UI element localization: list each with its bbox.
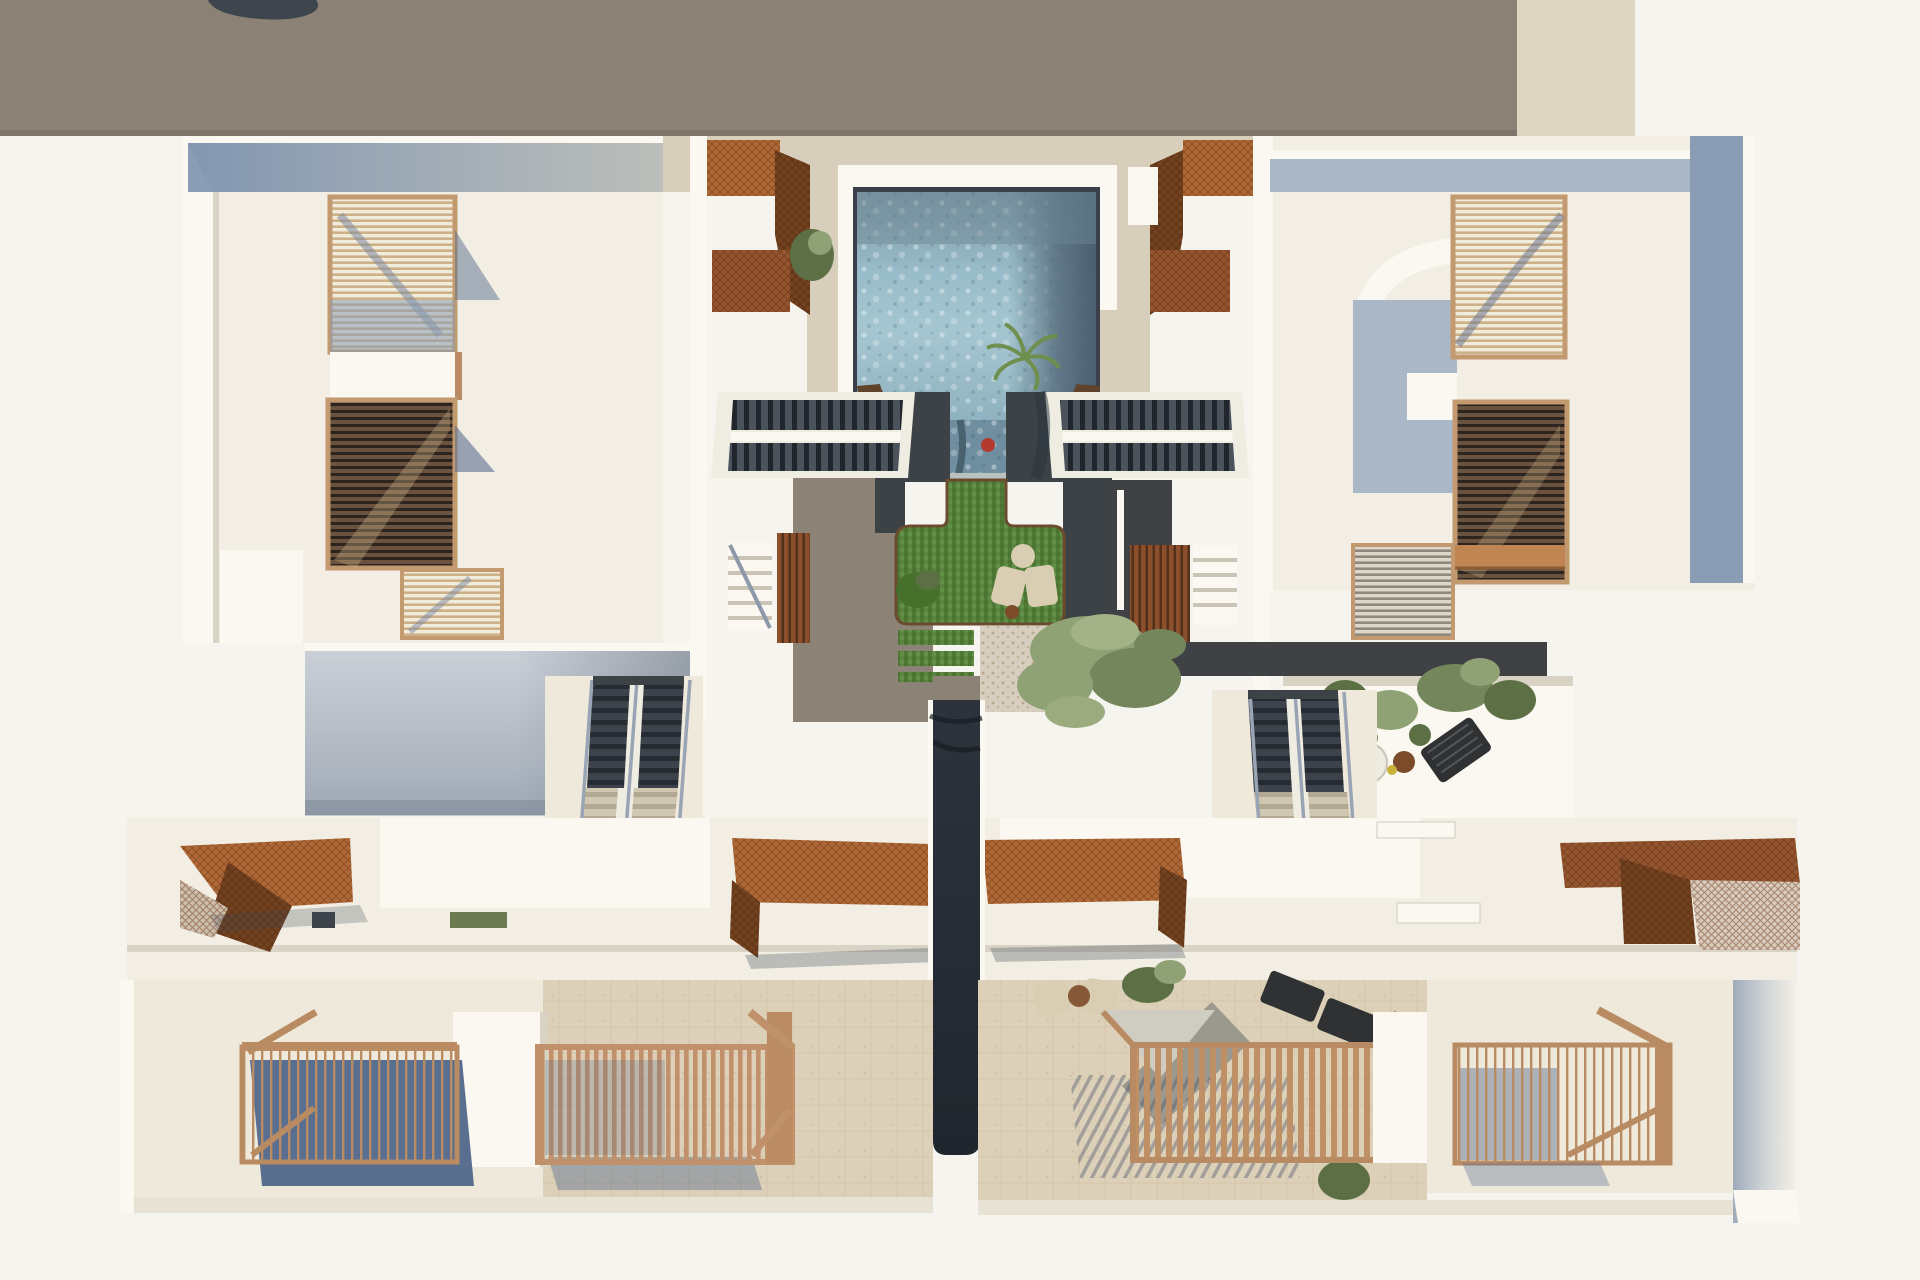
east-wall (1733, 980, 1800, 1223)
coffee-table (1068, 985, 1090, 1007)
planter-slot (450, 912, 507, 928)
central-corridor (928, 676, 985, 1155)
beige-wall-strip (1517, 0, 1635, 140)
west-wall (120, 980, 134, 1213)
lawn-step (898, 630, 974, 645)
balcony-screen-light-2 (402, 570, 502, 638)
roof-panel (1397, 903, 1480, 923)
north-parapet (1270, 159, 1743, 192)
balcony-slab (330, 352, 462, 400)
upper-left-building (183, 136, 663, 643)
upper-right-building (1257, 136, 1755, 638)
side-stairs-west (728, 533, 810, 643)
east-parapet (1690, 136, 1743, 583)
courtyard-stairs-east (1045, 392, 1249, 478)
corten-screen (777, 533, 810, 643)
pool-float (981, 438, 995, 452)
sw-volume (220, 550, 303, 643)
divider-box (1373, 1012, 1427, 1163)
balcony-screen-light-1 (1453, 197, 1565, 357)
side-table (1011, 544, 1035, 568)
lounge-chair (1023, 564, 1058, 608)
neighbor-roof (0, 0, 1517, 136)
render-canvas (0, 0, 1920, 1280)
architectural-render (0, 0, 1920, 1280)
courtyard-stairs-west (711, 392, 915, 478)
lawn-step (898, 651, 974, 666)
north-parapet (188, 142, 663, 192)
skylight (1377, 822, 1455, 838)
plant (1318, 1160, 1370, 1200)
